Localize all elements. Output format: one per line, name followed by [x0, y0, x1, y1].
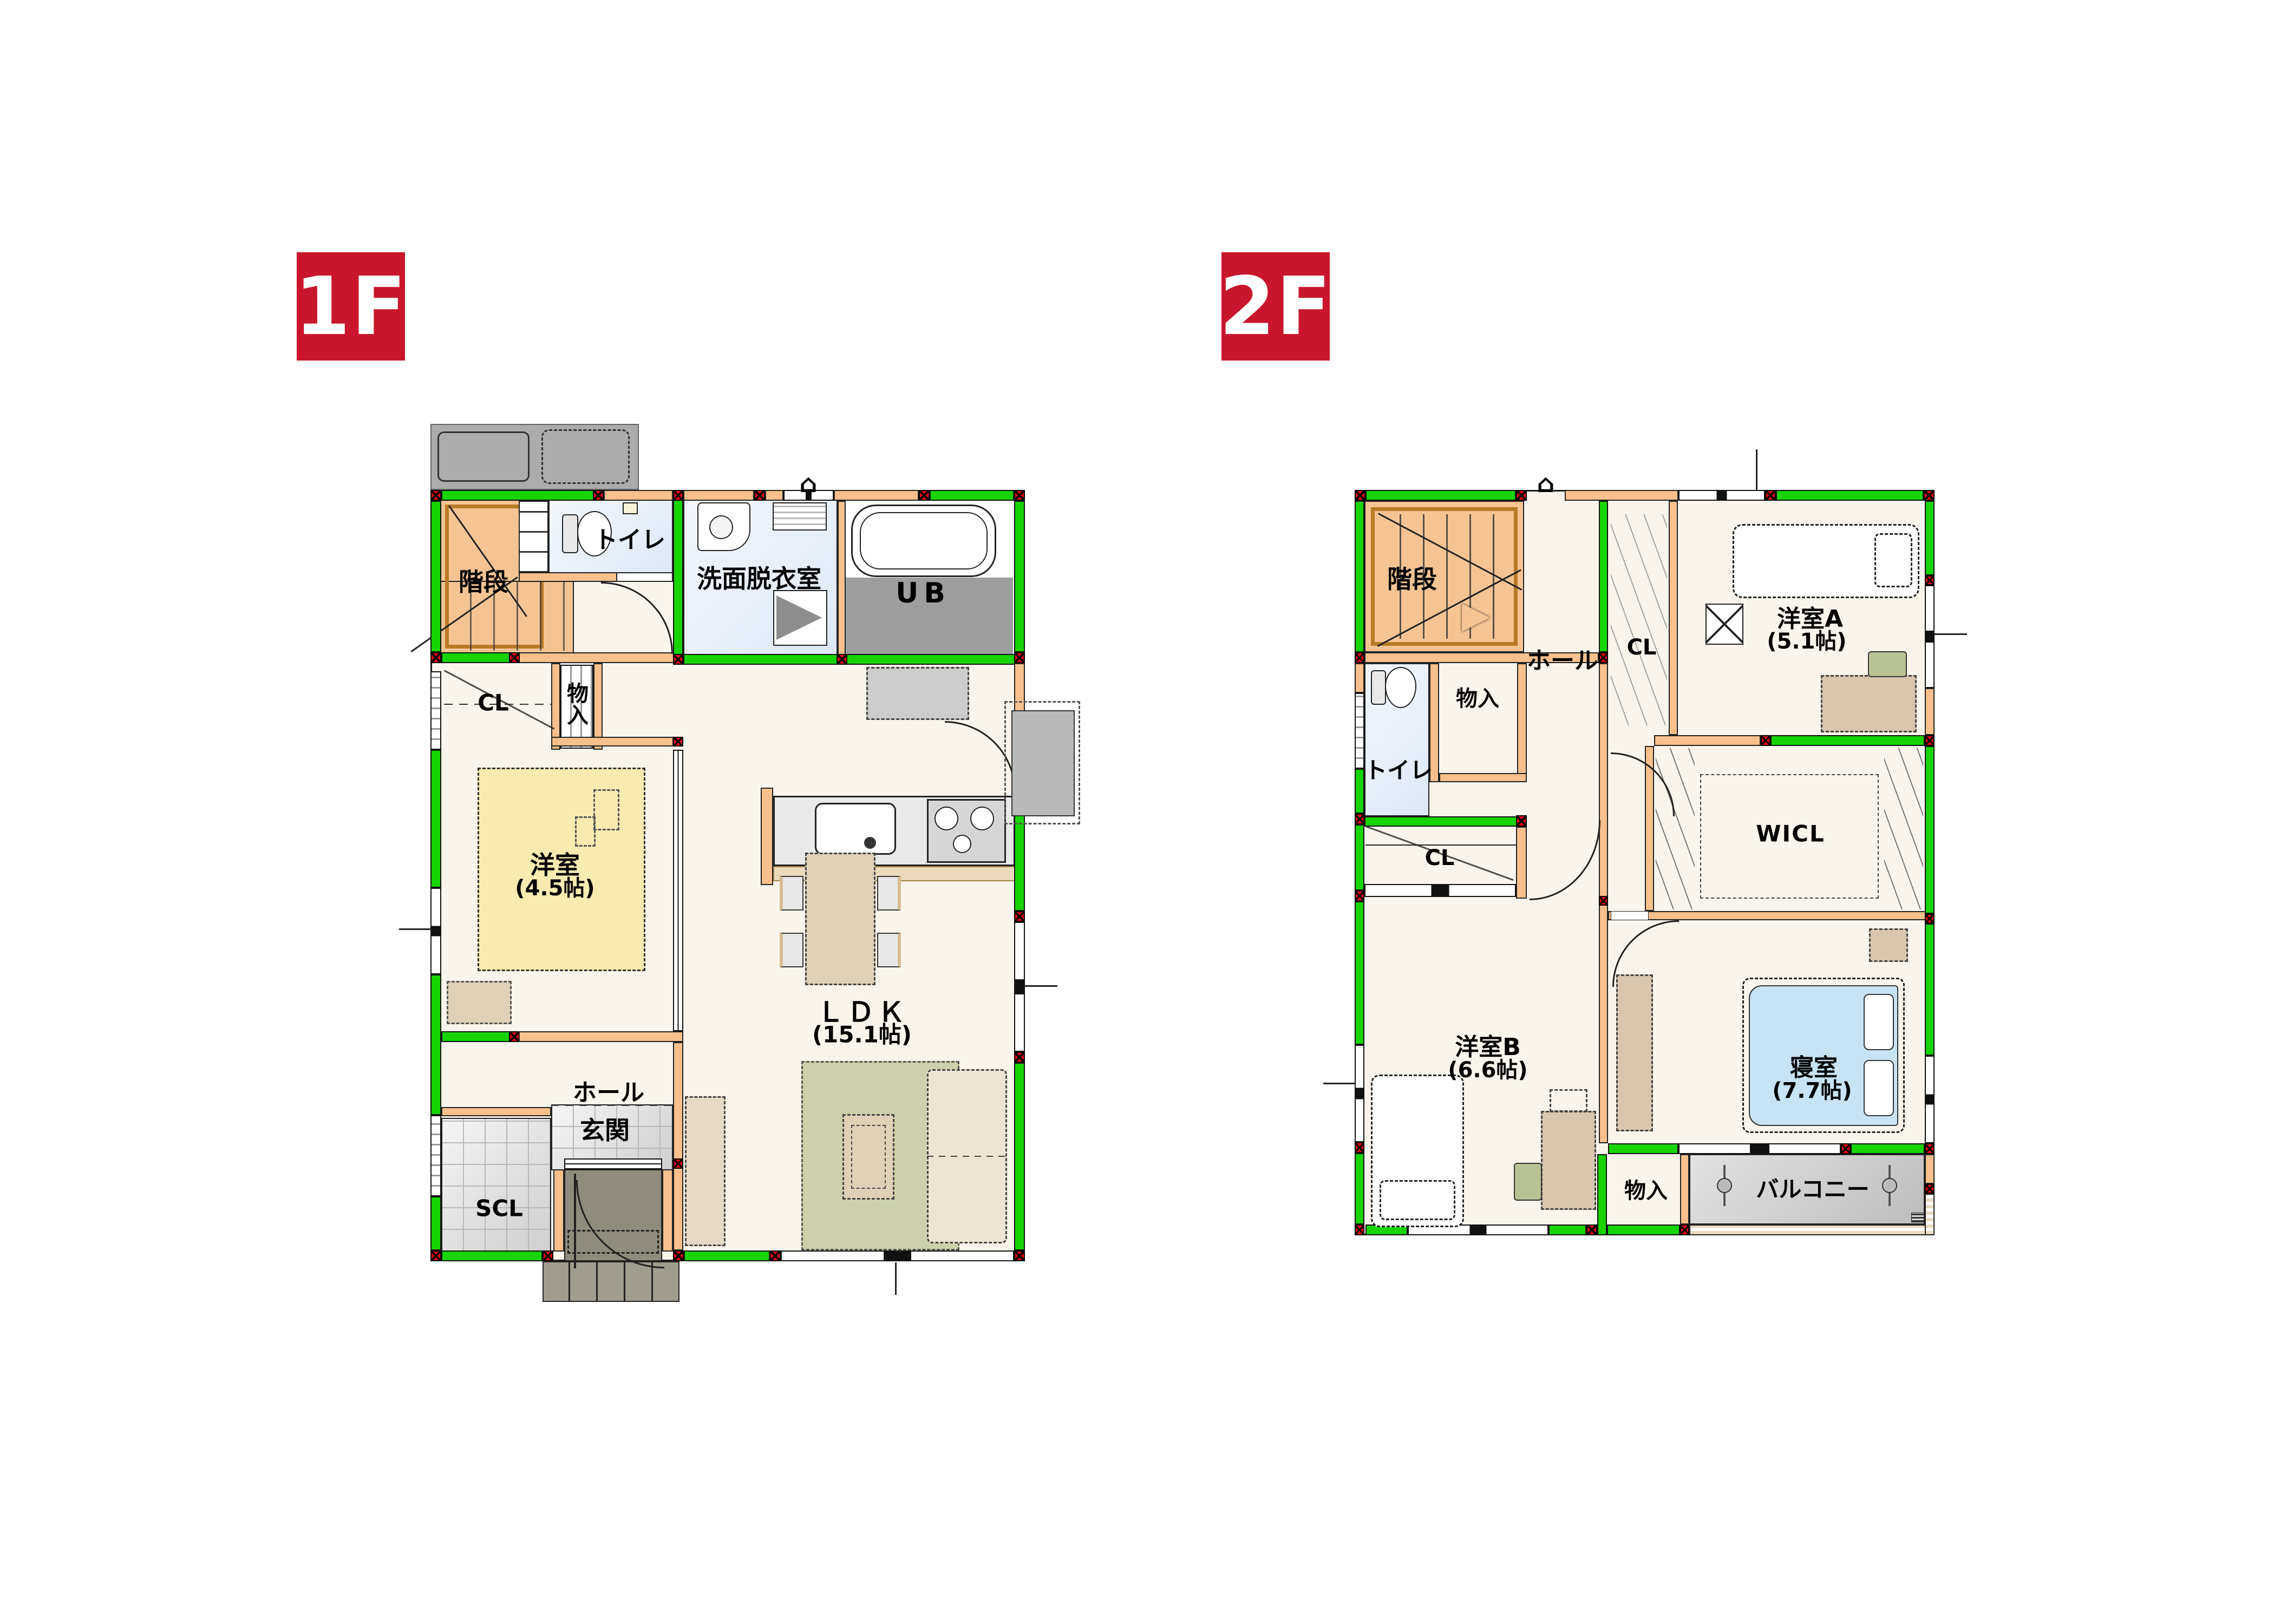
post — [1586, 1224, 1597, 1235]
burner-icon — [953, 835, 971, 853]
wall — [430, 750, 441, 888]
car-outline — [437, 431, 530, 482]
dining-chair — [877, 876, 901, 911]
dim-tick — [399, 928, 432, 930]
wall — [551, 737, 674, 746]
room-label-f2-yoshitsuA-size: (5.1帖) — [1767, 624, 1846, 655]
chair-b — [1514, 1163, 1542, 1201]
post — [430, 652, 441, 663]
window — [430, 888, 441, 974]
window — [430, 1115, 441, 1196]
stair-arrow-2f — [1462, 604, 1490, 632]
bedroom-dresser — [1616, 974, 1653, 1131]
wall — [673, 1042, 683, 1250]
room-label-f1-hall: ホール — [573, 1073, 644, 1108]
window — [1678, 490, 1765, 501]
wall — [1925, 924, 1935, 1056]
wall — [930, 490, 1014, 501]
dining-chair — [877, 933, 901, 967]
post — [1841, 1143, 1851, 1154]
dim-tick — [1756, 449, 1757, 490]
post — [509, 1031, 520, 1042]
room-label-f1-ub: UB — [896, 577, 951, 610]
washroom-door-triangle — [776, 595, 822, 640]
crib-dashed — [593, 789, 619, 830]
post — [1014, 1250, 1025, 1261]
wall — [1597, 1154, 1607, 1235]
room-label-f2-shinshitsu-size: (7.7帖) — [1772, 1073, 1852, 1104]
wicl-hanger-right — [1884, 748, 1923, 909]
wall — [1776, 490, 1924, 501]
wall — [1608, 911, 1935, 920]
post — [1355, 490, 1365, 501]
wall — [1517, 663, 1527, 782]
post — [770, 1250, 781, 1261]
wall — [1654, 735, 1761, 746]
hall-counter — [616, 572, 673, 582]
room-label-f2-wicl: WICL — [1756, 821, 1825, 847]
wall — [1365, 490, 1516, 501]
window — [1355, 693, 1364, 769]
wall — [441, 1031, 510, 1042]
yoshitsu-dresser — [447, 981, 512, 1024]
car-outline-dashed — [541, 429, 630, 484]
toilet-niche — [623, 502, 638, 514]
room-label-f2-hall: ホール — [1527, 641, 1598, 676]
room-label-f1-scl: SCL — [475, 1195, 523, 1222]
entrance-door-leaf — [574, 1174, 576, 1268]
post — [1599, 896, 1608, 906]
post — [1355, 1142, 1364, 1153]
post — [673, 737, 683, 746]
sliding-door-yoshitsu — [673, 750, 683, 1031]
scl-floor — [441, 1118, 551, 1252]
burner-icon — [970, 807, 994, 830]
wall — [1607, 1224, 1680, 1235]
side-porch-slab — [1011, 710, 1075, 816]
post — [593, 490, 604, 501]
post — [1355, 890, 1364, 901]
room-label-f2-cl-b: CL — [1425, 846, 1455, 870]
window — [430, 671, 441, 750]
pantry-dashed — [866, 667, 969, 720]
post — [430, 490, 441, 501]
post — [1925, 1143, 1935, 1154]
wall — [430, 501, 441, 652]
wall — [1925, 746, 1935, 914]
post — [1599, 652, 1608, 663]
balcony-rail-bottom — [1689, 1224, 1935, 1235]
post — [1014, 911, 1025, 922]
laundry-space — [773, 502, 827, 531]
post — [1014, 652, 1025, 663]
post — [673, 654, 683, 665]
wall — [1364, 816, 1517, 827]
balcony-sliding-door — [1678, 1143, 1841, 1154]
wall — [684, 1250, 770, 1261]
floor1-badge: 1F — [297, 252, 405, 361]
wall — [1014, 1063, 1025, 1250]
wall — [1925, 1154, 1935, 1184]
window — [1014, 922, 1025, 1052]
post — [1680, 1224, 1689, 1235]
bathtub-inner — [860, 512, 988, 569]
post — [1355, 814, 1364, 824]
post — [1925, 575, 1935, 585]
post — [1925, 914, 1935, 924]
wall — [1516, 827, 1527, 899]
wall — [1925, 501, 1935, 575]
bed-a-pillow — [1874, 533, 1912, 587]
futon-hanger-knob — [1717, 1178, 1732, 1193]
kitchen-faucet-icon — [864, 837, 876, 849]
room-label-f1-genkan: 玄関 — [580, 1111, 630, 1147]
balcony-rail-right — [1925, 1194, 1935, 1235]
post — [837, 654, 847, 665]
floor-plan-canvas: 1F 2F — [0, 0, 2274, 1624]
balcony-drain — [1911, 1213, 1924, 1222]
room-label-f1-washroom: 洗面脱衣室 — [697, 559, 821, 595]
post — [1925, 1184, 1935, 1194]
room-label-f2-balcony: バルコニー — [1756, 1171, 1869, 1204]
wall — [441, 652, 510, 663]
room-label-f1-cl: CL — [478, 690, 509, 716]
room-label-f1-ldk-size: (15.1帖) — [812, 1017, 912, 1050]
futon-hanger-knob — [1882, 1178, 1897, 1193]
vent-icon: ⌂ — [1537, 469, 1555, 498]
wall — [1355, 824, 1364, 890]
window — [1355, 1045, 1364, 1142]
wall — [441, 1250, 543, 1261]
wall — [1925, 688, 1935, 735]
wall — [765, 490, 783, 501]
room-label-f2-stairs: 階段 — [1387, 560, 1437, 595]
chair-a — [1868, 651, 1907, 677]
toilet-tank-icon — [562, 514, 578, 553]
wall — [1599, 501, 1608, 652]
vent-icon: ⌂ — [800, 469, 818, 498]
post — [509, 652, 520, 663]
post — [1765, 490, 1776, 501]
post — [673, 490, 683, 501]
room-label-f2-monoire-a: 物入 — [1456, 681, 1499, 712]
post — [919, 490, 930, 501]
sofa-divider — [927, 1156, 1007, 1157]
wicl-hanger-left — [1656, 748, 1695, 909]
dim-tick — [895, 1262, 897, 1295]
wall — [1680, 1154, 1689, 1224]
bedroom-door-gap — [1611, 911, 1649, 920]
cl2f-upper-hatch — [1611, 514, 1667, 725]
wall — [673, 500, 683, 663]
room-label-f1-yoshitsu-size: (4.5帖) — [515, 870, 594, 902]
wall — [1355, 1153, 1364, 1224]
post — [1355, 652, 1364, 663]
wall — [683, 654, 1015, 665]
wall — [519, 652, 683, 663]
desk-a — [1821, 675, 1917, 732]
post — [1925, 735, 1935, 746]
post — [673, 1250, 684, 1261]
wall — [1565, 490, 1678, 501]
dining-chair — [780, 933, 803, 967]
burner-icon — [935, 807, 958, 830]
room-label-f1-toilet: トイレ — [594, 520, 665, 555]
dim-tick — [1935, 633, 1967, 635]
dining-chair — [780, 876, 803, 911]
room-label-f2-cl-a: CL — [1627, 635, 1657, 660]
post — [673, 1158, 683, 1169]
wall — [1548, 1224, 1586, 1235]
room-label-f1-stairs: 階段 — [459, 562, 508, 598]
kitchen-wall-stub — [761, 788, 773, 885]
wall — [662, 1169, 673, 1252]
wall — [1608, 1143, 1678, 1154]
low-table-inner — [851, 1125, 886, 1189]
dining-table — [805, 853, 875, 985]
post — [543, 1250, 553, 1261]
post — [754, 490, 765, 501]
wall — [1355, 501, 1364, 652]
crib-dashed — [575, 816, 596, 847]
window — [1925, 1056, 1935, 1143]
desk-b-shelf — [1550, 1089, 1587, 1112]
post — [1014, 490, 1025, 501]
post — [1516, 490, 1527, 501]
room-label-f2-yoshitsuB-size: (6.6帖) — [1448, 1052, 1527, 1084]
stair-treads-1f — [519, 501, 548, 572]
desk-b — [1541, 1111, 1596, 1210]
bed-master-pillow — [1864, 1060, 1894, 1116]
wall — [1014, 501, 1025, 652]
wall — [553, 1169, 564, 1252]
bed-master-pillow — [1864, 994, 1894, 1050]
wall — [1355, 663, 1364, 693]
floor2-badge: 2F — [1221, 252, 1330, 361]
post — [1355, 1224, 1364, 1235]
wall — [430, 974, 441, 1115]
post — [1014, 1052, 1025, 1063]
wall — [604, 490, 673, 501]
entrance-door-track — [564, 1158, 662, 1169]
dim-tick — [1025, 985, 1057, 987]
washbasin-bowl — [709, 515, 733, 539]
post — [1924, 490, 1935, 501]
wall — [683, 490, 754, 501]
hatch-square-icon — [1706, 604, 1743, 645]
wall — [834, 490, 919, 501]
wall — [519, 1031, 683, 1042]
wall — [838, 501, 846, 655]
post — [430, 1250, 441, 1261]
wall — [1669, 501, 1678, 735]
wall — [1355, 769, 1364, 814]
wall — [441, 490, 594, 501]
post — [1516, 815, 1527, 827]
shoe-cabinet-dashed — [685, 1096, 726, 1246]
wall — [1851, 1143, 1925, 1154]
kitchen-sink-icon — [815, 803, 896, 855]
room-label-f2-monoire-b: 物入 — [1624, 1173, 1668, 1204]
wall — [441, 1107, 551, 1116]
wall — [430, 1196, 441, 1250]
bedroom-cabinet — [1869, 928, 1908, 962]
dim-tick — [1323, 1083, 1356, 1084]
window — [1925, 585, 1935, 688]
wall — [1355, 901, 1364, 1045]
post — [1761, 735, 1770, 746]
cl-fold-doors-2f — [1364, 884, 1516, 897]
window — [781, 1250, 1014, 1261]
toilet-tank-icon-2f — [1371, 670, 1386, 705]
room-label-f1-monoire: 物入 — [560, 682, 591, 725]
room-label-f2-toilet: トイレ — [1364, 752, 1433, 785]
wall — [1439, 773, 1527, 782]
bed-b-pillow — [1380, 1180, 1455, 1220]
wall — [519, 572, 617, 582]
wall — [1770, 735, 1925, 746]
